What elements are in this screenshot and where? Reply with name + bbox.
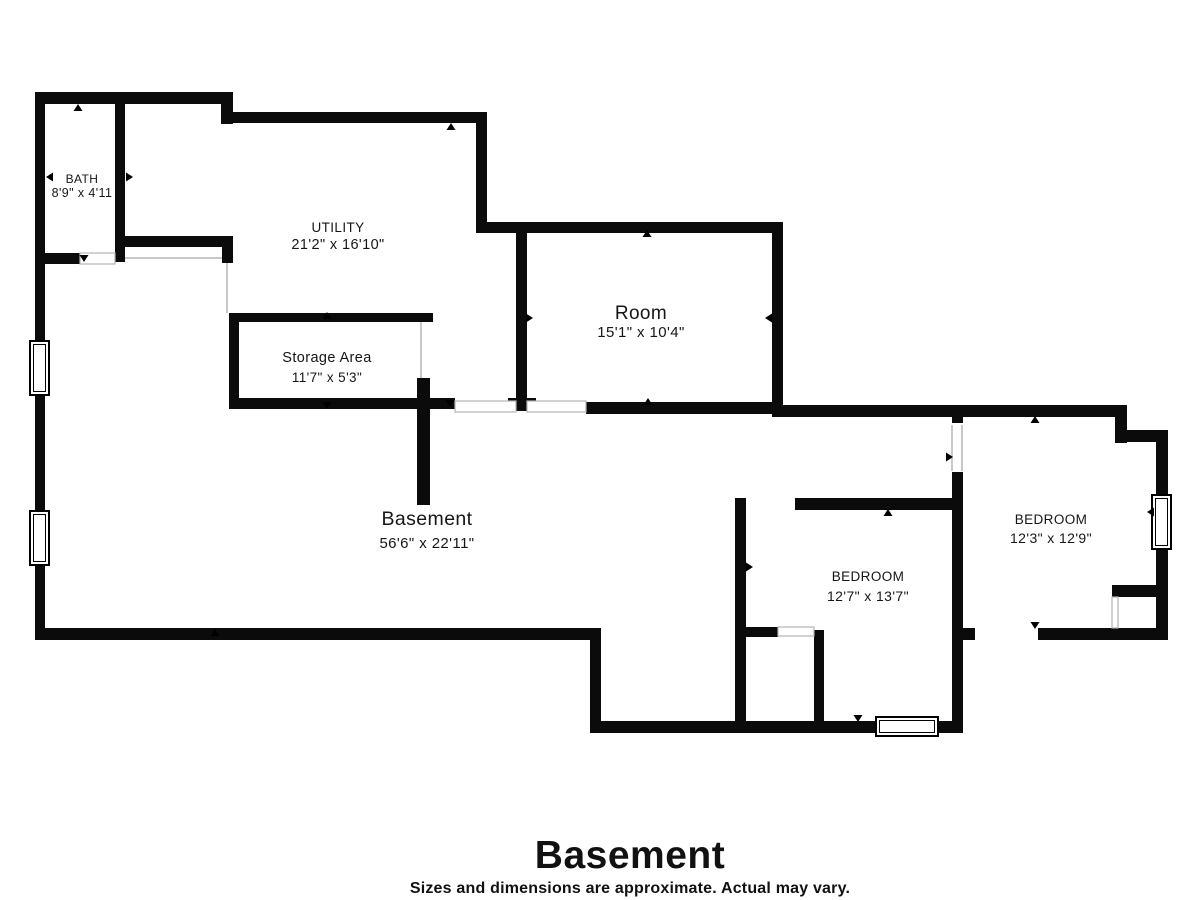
wall-segment <box>221 112 487 123</box>
wall-segment <box>1112 585 1157 597</box>
wall-segment <box>814 630 824 723</box>
camera-direction-tick-icon <box>1031 416 1040 423</box>
wall-segment <box>35 628 601 640</box>
wall-segment <box>125 236 233 247</box>
camera-direction-tick-icon <box>1147 508 1154 517</box>
camera-direction-tick-icon <box>746 563 753 572</box>
wall-segment <box>222 236 233 263</box>
wall-segment <box>35 92 232 104</box>
room-label-bedroom-2: BEDROOM <box>1015 512 1088 527</box>
room-label-storage-area: Storage Area <box>282 350 372 366</box>
wall-segment <box>952 472 963 733</box>
floor-plan: BATH8'9" x 4'11UTILITY21'2" x 16'10"Stor… <box>0 0 1200 760</box>
window <box>876 717 938 736</box>
wall-segment <box>795 498 963 510</box>
camera-direction-tick-icon <box>447 123 456 130</box>
camera-direction-tick-icon <box>526 314 533 323</box>
window <box>1152 495 1171 549</box>
camera-direction-tick-icon <box>74 104 83 111</box>
wall-segment <box>735 627 778 637</box>
wall-segment <box>735 498 746 729</box>
room-dimensions-basement: 56'6" x 22'11" <box>379 535 474 552</box>
room-dimensions-utility: 21'2" x 16'10" <box>291 237 384 253</box>
camera-direction-tick-icon <box>854 715 863 722</box>
wall-segment <box>586 402 783 414</box>
room-dimensions-bedroom-2: 12'3" x 12'9" <box>1010 530 1092 546</box>
plan-footer: Basement Sizes and dimensions are approx… <box>30 836 1200 898</box>
door-opening <box>1112 597 1118 628</box>
wall-segment <box>772 405 1127 417</box>
room-label-utility: UTILITY <box>311 220 364 235</box>
window <box>30 341 49 395</box>
room-dimensions-bath: 8'9" x 4'11 <box>52 186 113 200</box>
plan-title: Basement <box>30 836 1200 877</box>
wall-segment <box>590 628 601 733</box>
camera-direction-tick-icon <box>126 173 133 182</box>
wall-segment <box>1038 628 1168 640</box>
room-label-bath: BATH <box>66 172 99 186</box>
room-label-basement: Basement <box>382 508 473 530</box>
floor-plan-drawing: BATH8'9" x 4'11UTILITY21'2" x 16'10"Stor… <box>0 0 1200 760</box>
door-opening <box>527 401 586 412</box>
wall-segment <box>40 253 80 264</box>
wall-segment <box>476 112 487 233</box>
wall-segment <box>952 405 963 423</box>
camera-direction-tick-icon <box>644 398 653 405</box>
wall-segment <box>229 313 239 407</box>
door-opening <box>778 627 814 636</box>
wall-segment <box>772 222 783 417</box>
camera-direction-tick-icon <box>1031 622 1040 629</box>
wall-segment <box>516 227 527 405</box>
camera-direction-tick-icon <box>884 509 893 516</box>
camera-direction-tick-icon <box>765 314 772 323</box>
wall-segment <box>115 98 125 262</box>
room-dimensions-storage-area: 11'7" x 5'3" <box>292 370 362 385</box>
camera-direction-tick-icon <box>46 173 53 182</box>
room-label-bedroom-1: BEDROOM <box>832 569 905 584</box>
plan-disclaimer: Sizes and dimensions are approximate. Ac… <box>30 880 1200 898</box>
room-dimensions-bedroom-1: 12'7" x 13'7" <box>827 588 909 604</box>
door-opening <box>455 401 516 412</box>
wall-segment <box>229 313 433 322</box>
room-dimensions-room: 15'1" x 10'4" <box>597 324 684 341</box>
wall-segment <box>417 378 430 505</box>
room-label-room: Room <box>615 303 667 324</box>
window <box>30 511 49 565</box>
